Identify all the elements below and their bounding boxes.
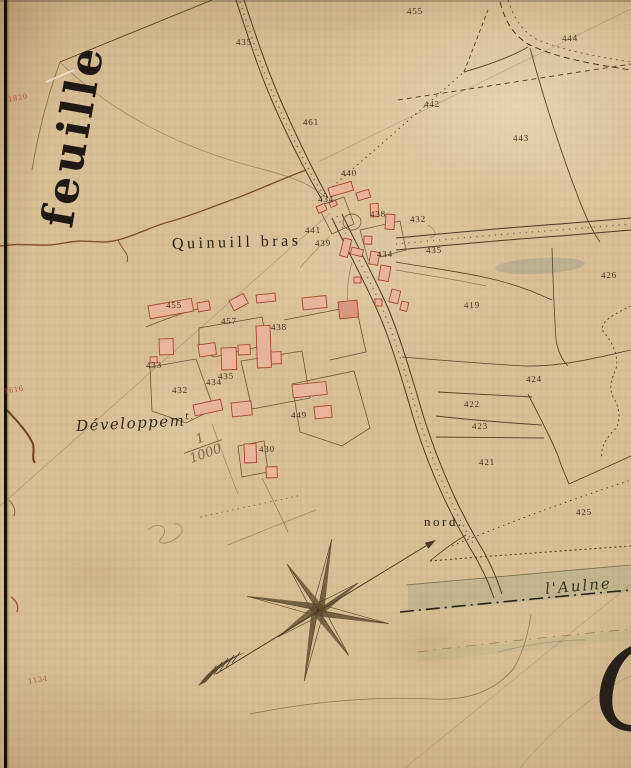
edge-annotation: 1820 bbox=[7, 92, 28, 103]
edge-annotation: 1134 bbox=[27, 674, 48, 685]
cadastral-map: feuille Quinuill bras Développemt. 1 100… bbox=[0, 0, 631, 768]
edge-annotation: 1616 bbox=[3, 384, 24, 395]
edge-marks-layer: 182016161134 bbox=[0, 0, 631, 768]
